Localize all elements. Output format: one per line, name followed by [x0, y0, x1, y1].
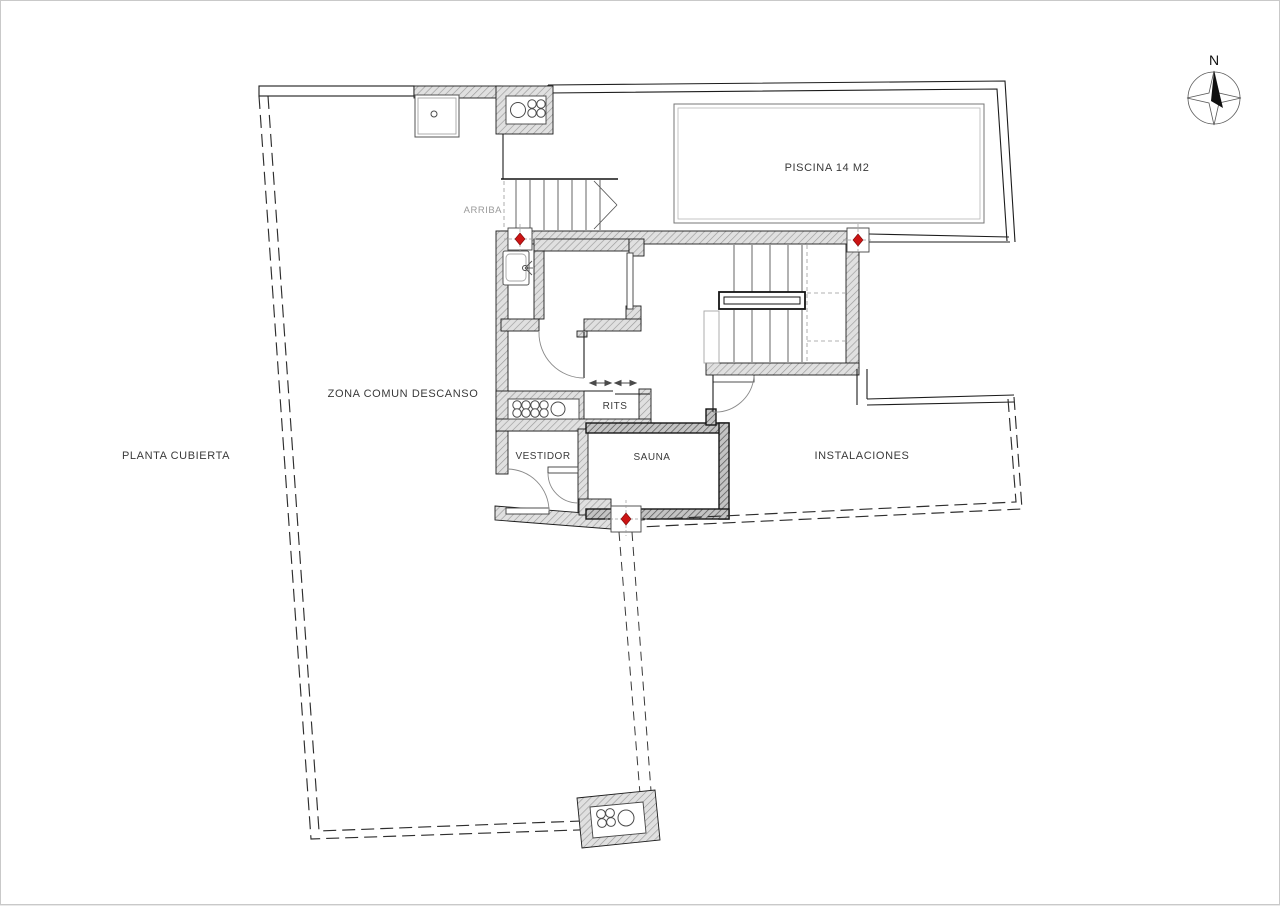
floor-plan-drawing: N PLANTA CUBIERTA ZONA COMUN DESCANSO PI… [1, 1, 1280, 906]
elevator-door-leaf [627, 253, 633, 309]
marker-pool-wall [843, 224, 873, 256]
plan-title: PLANTA CUBIERTA [122, 450, 230, 462]
label-vestidor: VESTIDOR [515, 451, 570, 462]
label-zona-comun: ZONA COMUN DESCANSO [328, 388, 479, 400]
floor-plan-sheet: N PLANTA CUBIERTA ZONA COMUN DESCANSO PI… [0, 0, 1280, 905]
sink [503, 251, 533, 285]
label-sauna: SAUNA [634, 452, 671, 463]
compass-rose: N [1187, 52, 1241, 125]
upper-stairs [501, 134, 618, 230]
instalaciones-boundary [639, 369, 1022, 527]
label-arriba: ARRIBA [464, 205, 503, 216]
slide-arrow-icon [590, 381, 611, 386]
shower-tray [415, 95, 459, 137]
pipe-closet [508, 399, 579, 419]
label-instalaciones: INSTALACIONES [814, 450, 909, 462]
stair-railing [719, 292, 805, 309]
vent-structure [577, 790, 660, 848]
label-rits: RITS [603, 401, 628, 412]
compass-north-label: N [1209, 52, 1219, 68]
roof-vent-niche [506, 96, 546, 124]
drain-icon [431, 111, 437, 117]
main-stairs [704, 245, 845, 363]
label-piscina: PISCINA 14 M2 [785, 162, 870, 174]
marker-elevator [504, 224, 536, 254]
elevator-shaft [627, 253, 633, 309]
slide-arrow-icon [615, 381, 636, 386]
pipe-route [619, 532, 651, 794]
